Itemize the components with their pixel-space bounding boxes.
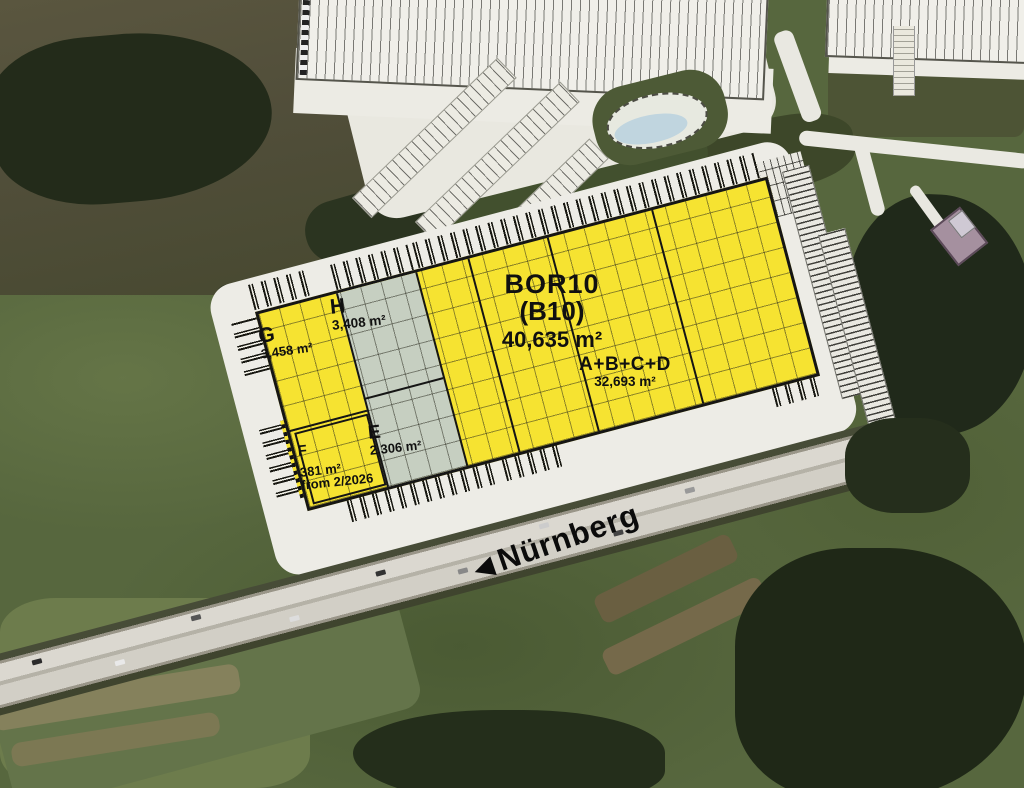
aerial-site-plan: BOR10 (B10) 40,635 m² A+B+C+D 32,693 m² …	[0, 0, 1024, 788]
main-building-code: BOR10	[502, 270, 602, 298]
main-building-total-area: 40,635 m²	[502, 328, 602, 351]
unit-g-label: G 3,458 m²	[257, 319, 314, 362]
northeast-ramp-strip	[893, 26, 915, 96]
main-building-code-alt: (B10)	[502, 298, 602, 325]
main-building-label: BOR10 (B10) 40,635 m²	[502, 270, 602, 351]
vehicle	[289, 615, 300, 622]
unit-abcd-id: A+B+C+D	[579, 355, 671, 375]
unit-f-label: F 381 m² from 2/2026	[297, 436, 374, 492]
unit-abcd-label: A+B+C+D 32,693 m²	[579, 355, 671, 389]
vehicle	[457, 567, 468, 574]
forest-bottom-center	[353, 710, 665, 788]
vehicle	[114, 659, 125, 666]
unit-abcd-area: 32,693 m²	[579, 375, 671, 389]
vehicle	[375, 569, 386, 576]
forest-over-highway-end	[845, 418, 970, 513]
unit-e-label: E 2,306 m²	[367, 419, 422, 458]
access-road-north-stub	[772, 28, 823, 124]
forest-bottom-right	[735, 548, 1024, 788]
existing-building-northeast	[825, 0, 1024, 64]
vehicle	[191, 614, 202, 621]
vehicle	[684, 487, 695, 494]
unit-h-label: H 3,408 m²	[329, 291, 387, 333]
vehicle	[32, 658, 43, 665]
